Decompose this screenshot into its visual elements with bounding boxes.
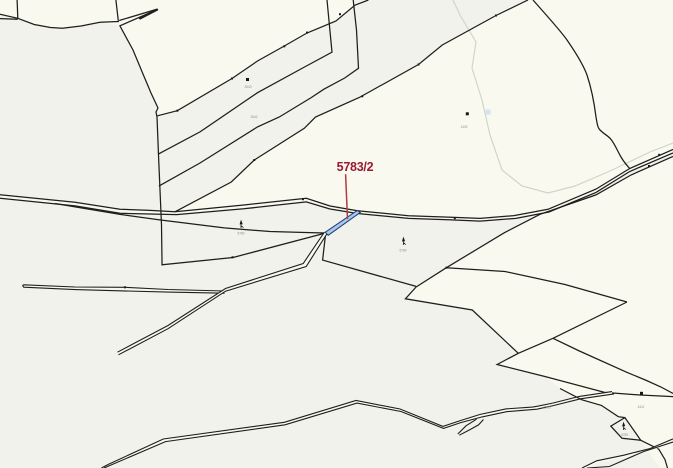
svg-text:4411: 4411 xyxy=(638,405,645,409)
svg-text:2296: 2296 xyxy=(543,405,550,409)
svg-text:5784: 5784 xyxy=(399,249,406,253)
svg-text:5780: 5780 xyxy=(237,232,244,236)
svg-text:2642: 2642 xyxy=(250,115,257,119)
svg-text:1402: 1402 xyxy=(460,125,467,129)
svg-text:5783/2: 5783/2 xyxy=(337,160,374,174)
svg-text:2640: 2640 xyxy=(244,85,251,89)
svg-text:5785: 5785 xyxy=(621,433,628,437)
